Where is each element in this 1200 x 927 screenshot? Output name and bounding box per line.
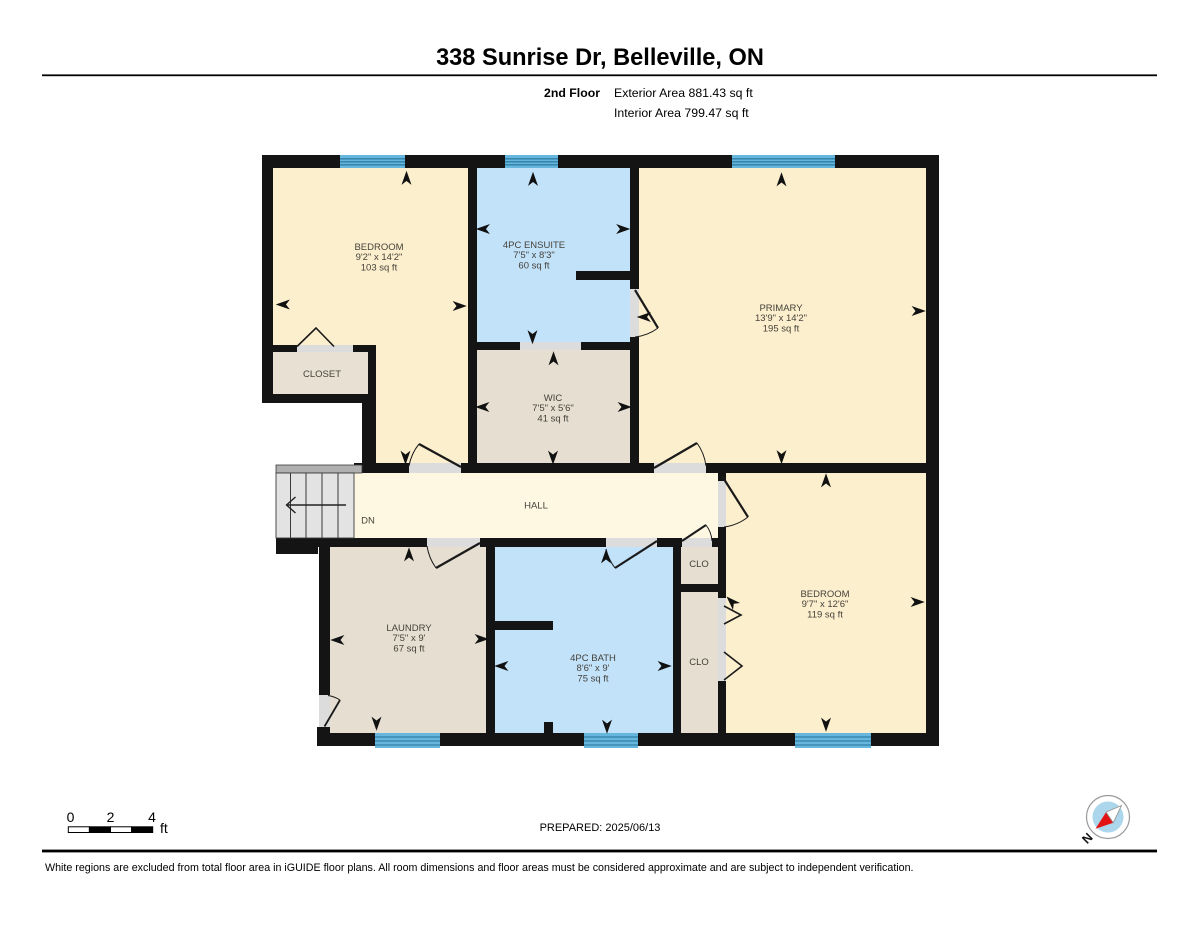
svg-text:CLO: CLO	[689, 559, 709, 570]
svg-text:PREPARED: 2025/06/13: PREPARED: 2025/06/13	[540, 822, 661, 834]
svg-text:103 sq ft: 103 sq ft	[361, 262, 398, 273]
svg-text:HALL: HALL	[524, 501, 548, 512]
svg-text:0: 0	[67, 809, 75, 825]
svg-text:2nd Floor: 2nd Floor	[544, 86, 600, 100]
svg-text:DN: DN	[361, 516, 375, 527]
svg-text:4: 4	[148, 809, 156, 825]
svg-text:2: 2	[107, 809, 115, 825]
svg-text:CLO: CLO	[689, 657, 709, 668]
svg-text:195 sq ft: 195 sq ft	[763, 323, 800, 334]
svg-text:67 sq ft: 67 sq ft	[393, 643, 425, 654]
svg-text:CLOSET: CLOSET	[303, 369, 341, 380]
svg-text:338 Sunrise Dr, Belleville, ON: 338 Sunrise Dr, Belleville, ON	[436, 45, 764, 71]
svg-text:ft: ft	[160, 820, 168, 836]
svg-text:Exterior Area 881.43 sq ft: Exterior Area 881.43 sq ft	[614, 86, 753, 100]
svg-text:60 sq ft: 60 sq ft	[518, 260, 550, 271]
svg-text:41 sq ft: 41 sq ft	[537, 413, 569, 424]
svg-text:75 sq ft: 75 sq ft	[577, 673, 609, 684]
svg-text:119 sq ft: 119 sq ft	[807, 609, 843, 620]
svg-text:White regions are excluded fro: White regions are excluded from total fl…	[45, 862, 914, 874]
svg-text:Interior Area 799.47 sq ft: Interior Area 799.47 sq ft	[614, 106, 749, 120]
